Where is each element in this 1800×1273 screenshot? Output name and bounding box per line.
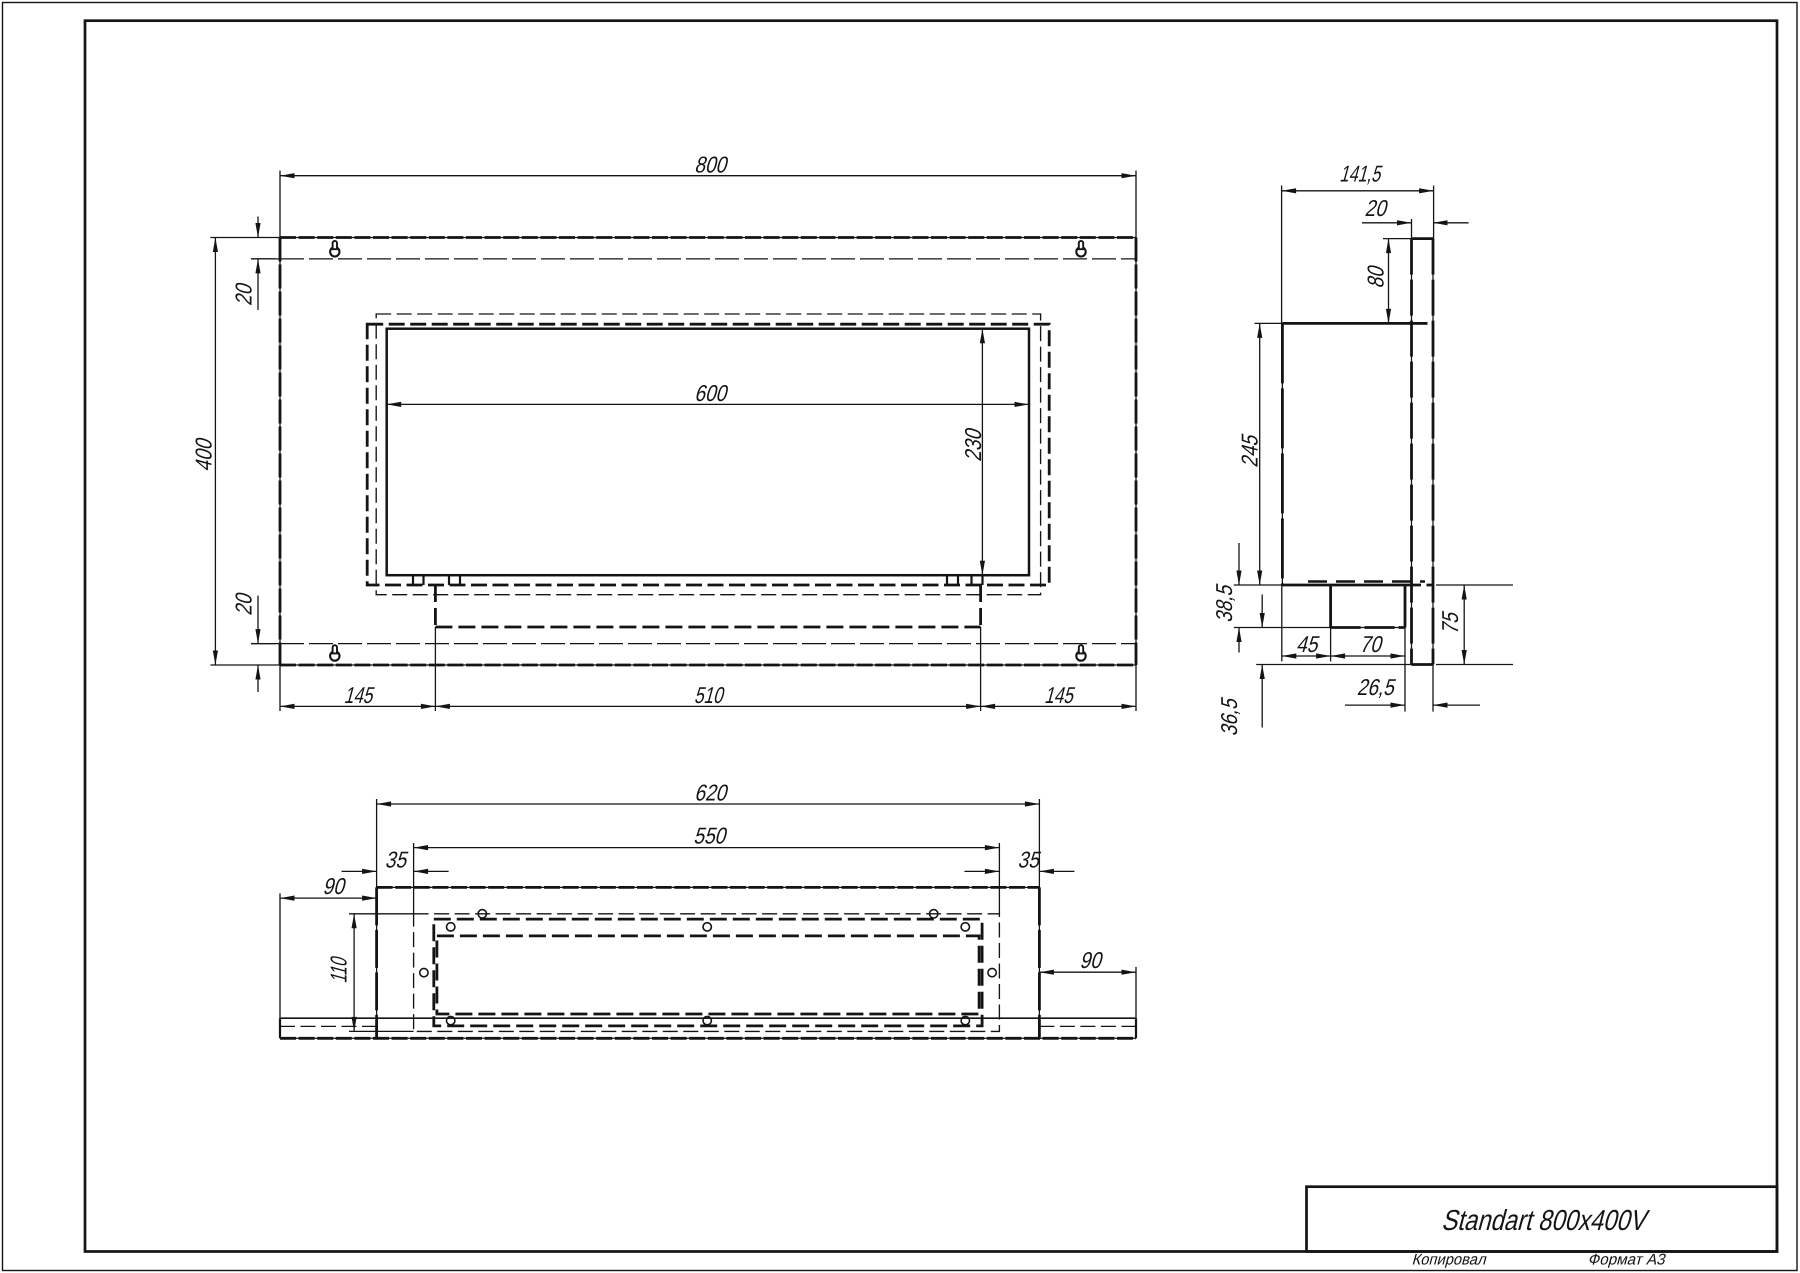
svg-text:Копировал: Копировал bbox=[1410, 1252, 1488, 1269]
svg-text:Формат А3: Формат А3 bbox=[1586, 1252, 1668, 1269]
svg-text:Standart 800x400V: Standart 800x400V bbox=[1439, 1204, 1652, 1236]
svg-text:36,5: 36,5 bbox=[1216, 694, 1242, 738]
svg-text:38,5: 38,5 bbox=[1211, 581, 1237, 625]
svg-text:141,5: 141,5 bbox=[1338, 161, 1385, 187]
svg-text:26,5: 26,5 bbox=[1355, 674, 1399, 700]
